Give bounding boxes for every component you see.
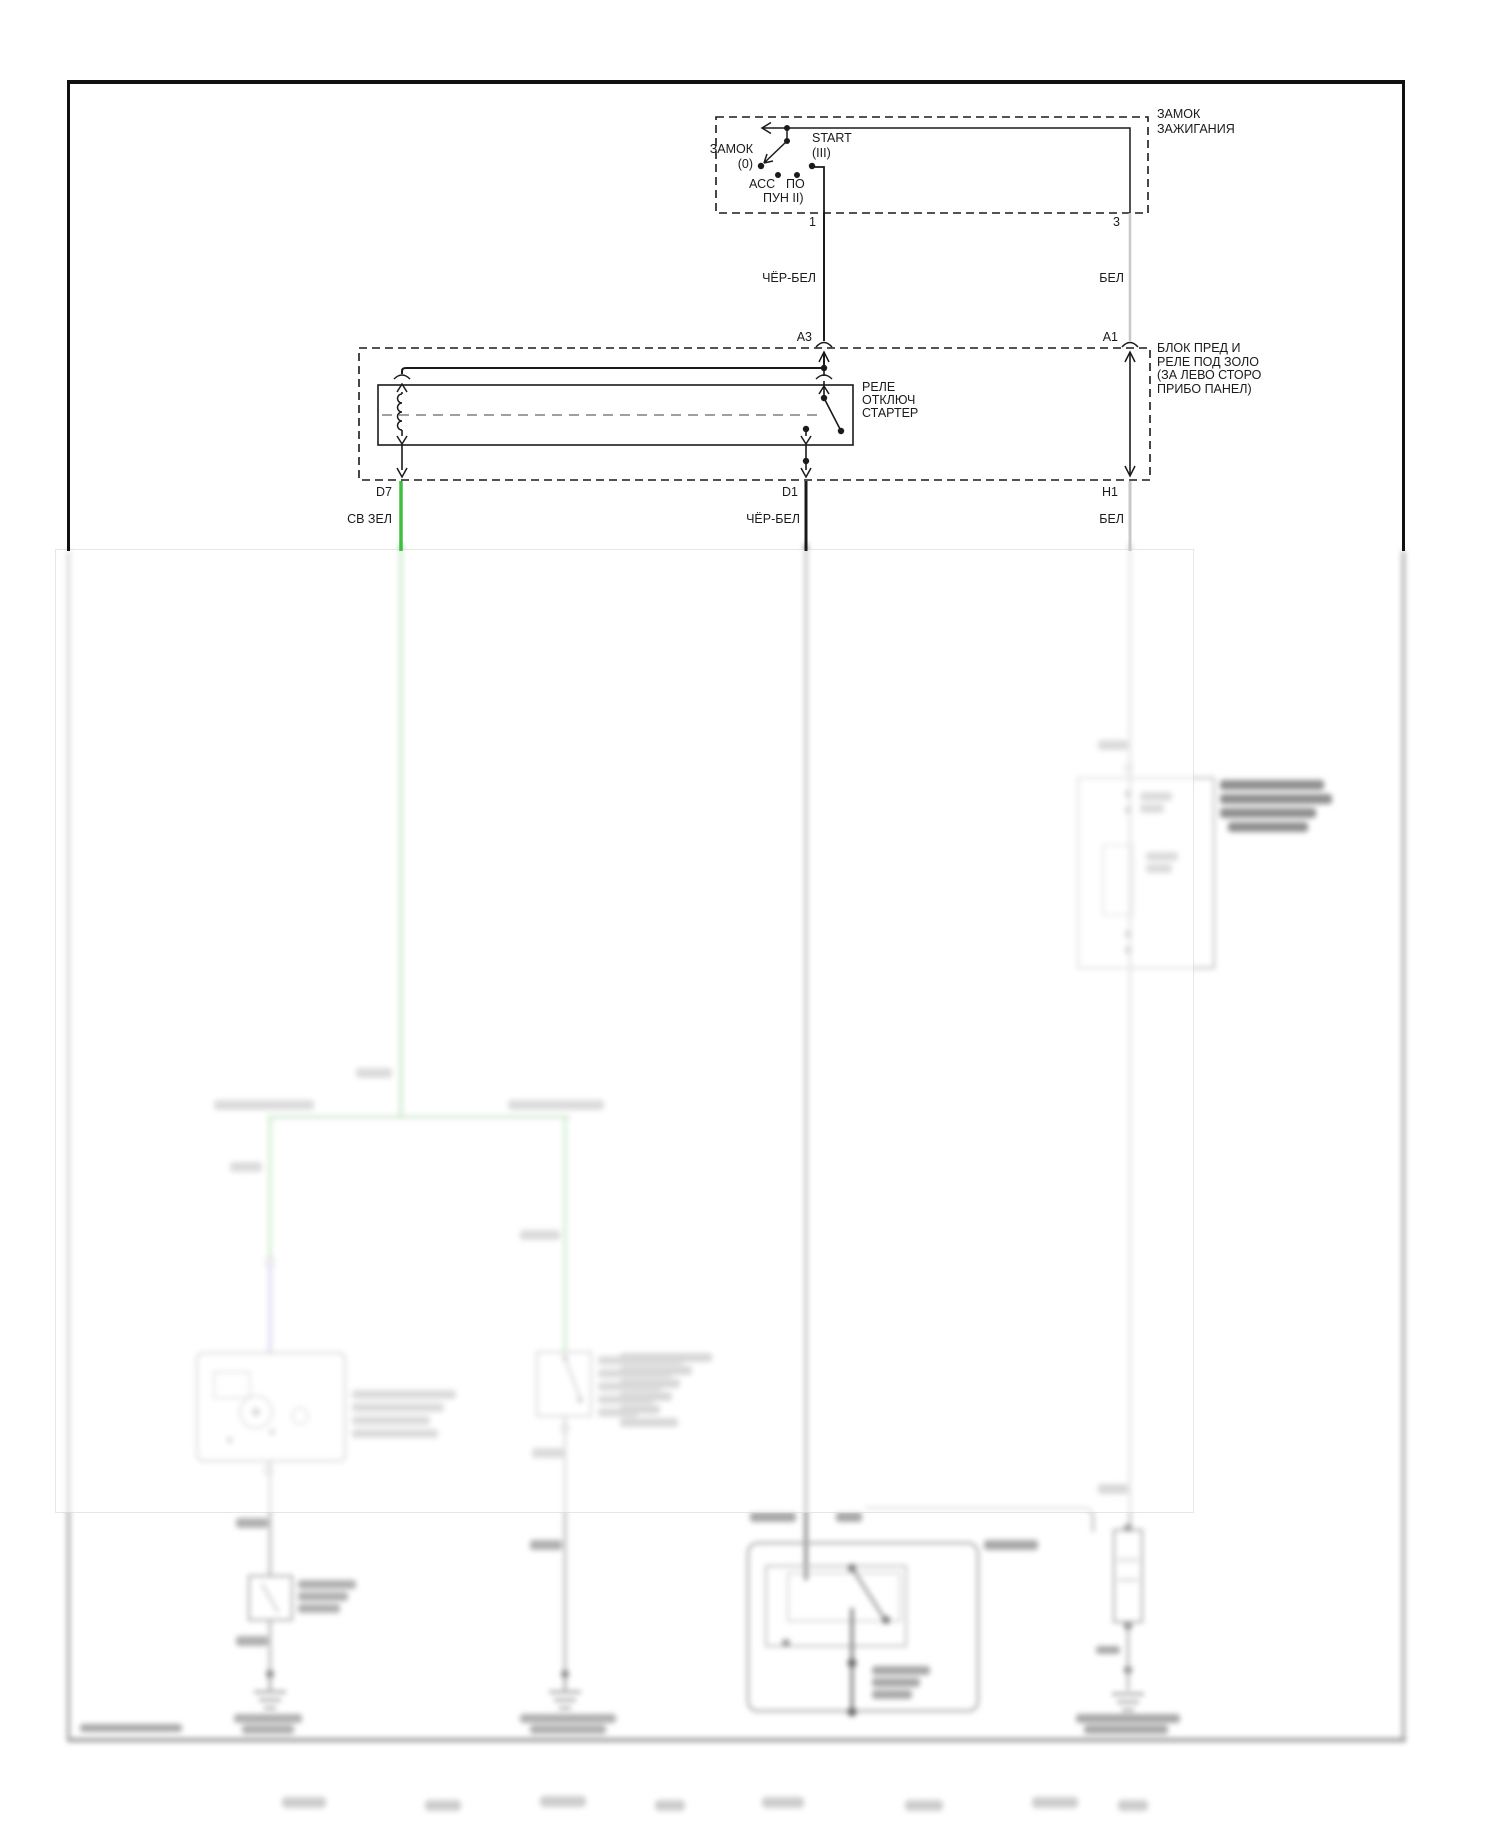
wire-label-cher-bel-lower: ЧЁР-БЕЛ (740, 513, 800, 527)
fuse-block-title-line3: (ЗА ЛЕВО СТОРО (1157, 369, 1261, 383)
pin-a1: A1 (1082, 331, 1118, 345)
pin-a3: A3 (776, 331, 812, 345)
diagram-linework (0, 0, 1500, 1828)
fuse-block-title-line1: БЛОК ПРЕД И (1157, 342, 1240, 356)
wiring-diagram-page: ЗАМОК ЗАЖИГАНИЯ ЗАМОК (0) START (III) АС… (0, 0, 1500, 1828)
wire-label-sv-zel: СВ ЗЕЛ (332, 513, 392, 527)
wire-label-bel-upper: БЕЛ (1064, 272, 1124, 286)
pin-d1: D1 (762, 486, 798, 500)
ignition-pos-lock-detent: (0) (693, 158, 753, 172)
ignition-pos-start-label: START (812, 132, 852, 146)
ignition-pin-1: 1 (800, 216, 816, 230)
pin-h1: H1 (1082, 486, 1118, 500)
ignition-box-title-line2: ЗАЖИГАНИЯ (1157, 123, 1235, 137)
ignition-pos-start-detent: (III) (812, 147, 831, 161)
relay-label-line3: СТАРТЕР (862, 407, 918, 421)
wire-label-bel-lower: БЕЛ (1064, 513, 1124, 527)
ignition-pos-run-label: ПУН II) (763, 192, 804, 206)
ignition-box-title-line1: ЗАМОК (1157, 108, 1200, 122)
wire-label-cher-bel-upper: ЧЁР-БЕЛ (756, 272, 816, 286)
fuse-block-title-line4: ПРИБО ПАНЕЛ) (1157, 383, 1252, 397)
pin-d7: D7 (356, 486, 392, 500)
ignition-pos-acc-label: АСС (749, 178, 775, 192)
ignition-pos-lock-label: ЗАМОК (693, 143, 753, 157)
ignition-pos-po-label: ПО (786, 178, 805, 192)
starter-disable-relay-symbol (378, 385, 853, 477)
fuse-relay-block-symbol (359, 343, 1150, 481)
ignition-pin-3: 3 (1104, 216, 1120, 230)
